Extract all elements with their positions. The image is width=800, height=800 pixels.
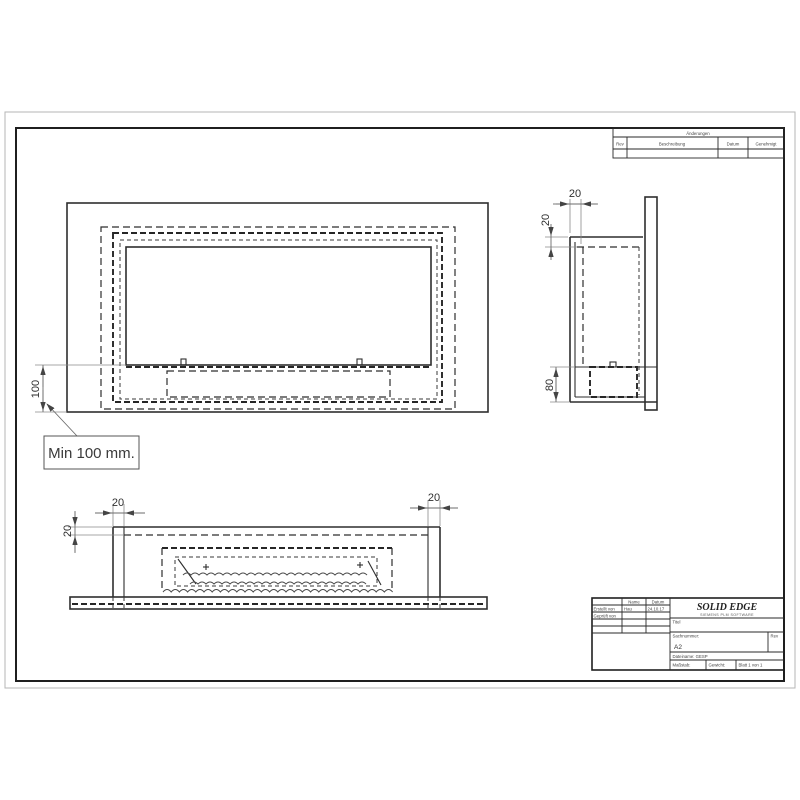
front-dim-height: 100: [30, 365, 126, 412]
revision-col-date: Datum: [727, 142, 740, 147]
title-label: Titel: [673, 620, 681, 625]
partnumber-label: Sachnummer:: [673, 634, 700, 639]
bottom-burner-marks: [203, 562, 363, 570]
side-burner-box: [590, 367, 637, 397]
title-block-approvals: Name Datum Erstellt von Hau 24.10.17 Gep…: [592, 598, 670, 670]
bottom-dim-wall-left: 20: [95, 497, 145, 526]
bottom-dim-wall-right: 20: [410, 492, 458, 526]
solid-edge-logo-sub: SIEMENS PLM SOFTWARE: [700, 613, 754, 617]
bottom-view: 20 20 20: [62, 492, 487, 609]
cad-drawing-canvas: Änderungen Rev Beschreibung Datum Genehm…: [0, 0, 800, 800]
sheet-border: [5, 112, 795, 688]
sheet-label: Blatt 1 von 1: [739, 663, 763, 668]
front-opening: [126, 247, 431, 365]
approvals-date-header: Datum: [652, 600, 665, 605]
weight-label: Gewicht:: [709, 663, 726, 668]
bottom-dim-top-offset-value: 20: [62, 525, 74, 537]
note-text: Min 100 mm.: [48, 445, 135, 462]
approvals-created-label: Erstellt von: [594, 607, 616, 612]
side-dim-top-offset-value: 20: [540, 214, 552, 226]
revision-col-approved: Genehmigt: [755, 142, 777, 147]
front-outer-panel: [67, 203, 488, 412]
revision-table-title: Änderungen: [686, 131, 710, 136]
front-hidden-frame-outer: [101, 227, 455, 409]
rev-label: Rev: [771, 634, 779, 639]
front-tab-right: [357, 359, 362, 365]
front-view: 100 Min 100 mm.: [30, 203, 488, 469]
side-dim-burner-value: 80: [544, 379, 556, 391]
revision-col-description: Beschreibung: [659, 142, 686, 147]
side-wall-plate: [645, 197, 657, 410]
revision-table: Änderungen Rev Beschreibung Datum Genehm…: [613, 128, 784, 158]
sheet-size: A2: [674, 644, 682, 651]
front-tab-left: [181, 359, 186, 365]
side-dim-depth: 20: [553, 188, 598, 244]
solid-edge-logo: SOLID EDGE: [697, 602, 758, 613]
drawing-page: Änderungen Rev Beschreibung Datum Genehm…: [0, 0, 800, 800]
title-block-info: SOLID EDGE SIEMENS PLM SOFTWARE Titel Sa…: [670, 602, 784, 670]
front-hidden-frame-inner: [120, 240, 437, 399]
bottom-burner-tray: [162, 548, 393, 592]
side-dim-depth-value: 20: [569, 188, 581, 200]
approvals-name-header: Name: [628, 600, 640, 605]
bottom-wall-plate: [70, 597, 487, 609]
approvals-created-name: Hau: [624, 607, 632, 612]
revision-col-rev: Rev: [616, 142, 624, 147]
front-note-min100: Min 100 mm.: [44, 404, 139, 469]
front-dim-height-value: 100: [30, 380, 42, 398]
front-hidden-frame-mid: [113, 233, 442, 402]
approvals-created-date: 24.10.17: [648, 607, 665, 612]
bottom-dim-top-offset: 20: [62, 511, 124, 553]
filename-text: Dateiname: GESP: [673, 654, 708, 659]
scale-label: Maßstab:: [673, 663, 691, 668]
approvals-checked-label: Geprüft von: [594, 614, 617, 619]
bottom-dim-wall-left-value: 20: [112, 497, 124, 509]
bottom-dim-wall-right-value: 20: [428, 492, 440, 504]
side-view: 20 20 80: [540, 188, 657, 410]
front-burner-box: [167, 371, 390, 397]
title-block: Name Datum Erstellt von Hau 24.10.17 Gep…: [592, 598, 784, 670]
